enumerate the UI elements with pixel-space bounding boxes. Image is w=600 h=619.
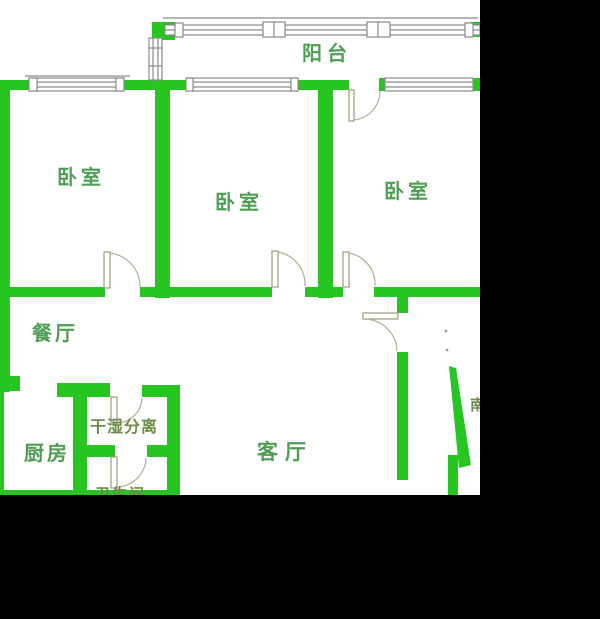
floor-plan: 阳台 卧室 卧室 卧室 餐厅 厨房 客厅 干湿分离 卫生间 南 (0, 0, 600, 619)
hallway-door (363, 313, 398, 351)
entry-door-swing-dots (445, 330, 449, 352)
bedroom-middle-window (186, 78, 298, 91)
bedroom-middle-door (272, 251, 305, 287)
balcony-window (163, 18, 480, 37)
balcony-door (349, 90, 380, 121)
label-kitchen: 厨房 (24, 443, 70, 463)
bedroom-left-window (25, 76, 130, 91)
entry-door-leaf-open (449, 366, 471, 468)
label-bedroom-middle: 卧室 (215, 192, 263, 212)
black-mask-bottom (0, 495, 600, 619)
bedroom-left-door (104, 252, 140, 288)
bedroom-right-door (343, 252, 375, 287)
label-dry-wet-separation: 干湿分离 (90, 419, 158, 435)
label-bedroom-right: 卧室 (384, 181, 432, 201)
balcony-side-window (149, 38, 162, 80)
walls (0, 22, 480, 495)
label-bedroom-left: 卧室 (57, 167, 105, 187)
bedroom-right-window (385, 78, 473, 91)
windows (25, 18, 480, 91)
drywet-lower-door (111, 457, 146, 488)
label-living-room: 客厅 (257, 442, 313, 463)
label-dining-room: 餐厅 (32, 323, 78, 343)
label-balcony: 阳台 (302, 43, 352, 63)
